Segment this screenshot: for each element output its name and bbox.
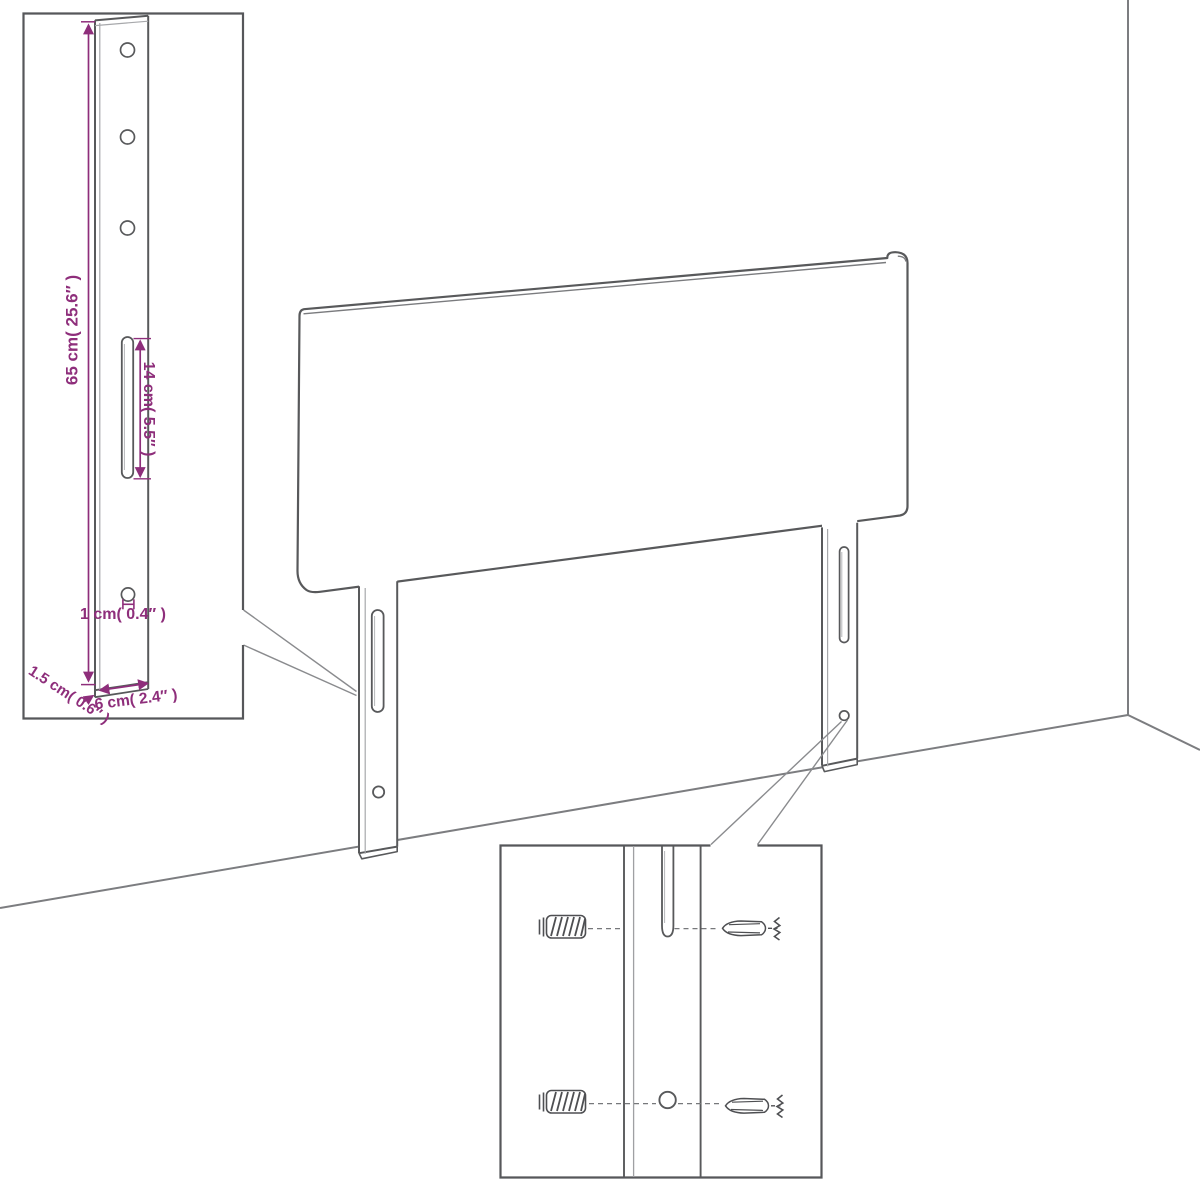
leg-hole-2 — [121, 130, 135, 144]
leg-slot — [122, 337, 133, 478]
floor-line-right — [1128, 715, 1200, 750]
assembly-diagram-canvas: 65 cm( 25.6″ ) 14 cm( 5.5″ ) 1 cm( 0.4″ … — [0, 0, 1200, 1200]
leg-hole-1 — [121, 43, 135, 57]
callout-from-right-leg-hole — [758, 720, 848, 845]
right-leg-screw-hole — [840, 711, 849, 720]
leg-hole-bottom — [121, 588, 134, 601]
technical-drawing — [0, 0, 1200, 1200]
left-leg-slot — [372, 610, 384, 712]
dim-label-slot-length: 14 cm( 5.5″ ) — [140, 362, 156, 457]
right-leg-slot — [840, 547, 849, 643]
callout-lines — [244, 610, 848, 845]
detail-inset-wall-mounting — [501, 846, 822, 1178]
left-leg-screw-hole — [373, 786, 384, 797]
headboard-panel — [298, 252, 908, 592]
dim-label-hole-diameter: 1 cm( 0.4″ ) — [80, 607, 166, 623]
callout-to-left-leg — [244, 610, 357, 692]
right-mounting-leg — [822, 517, 857, 772]
strip-screw-hole — [659, 1092, 675, 1108]
leg-hole-3 — [121, 221, 135, 235]
callout-to-left-leg — [244, 645, 357, 696]
dim-label-leg-height: 65 cm( 25.6″ ) — [64, 275, 81, 385]
panel-outline — [298, 252, 908, 592]
left-mounting-leg — [359, 575, 397, 859]
